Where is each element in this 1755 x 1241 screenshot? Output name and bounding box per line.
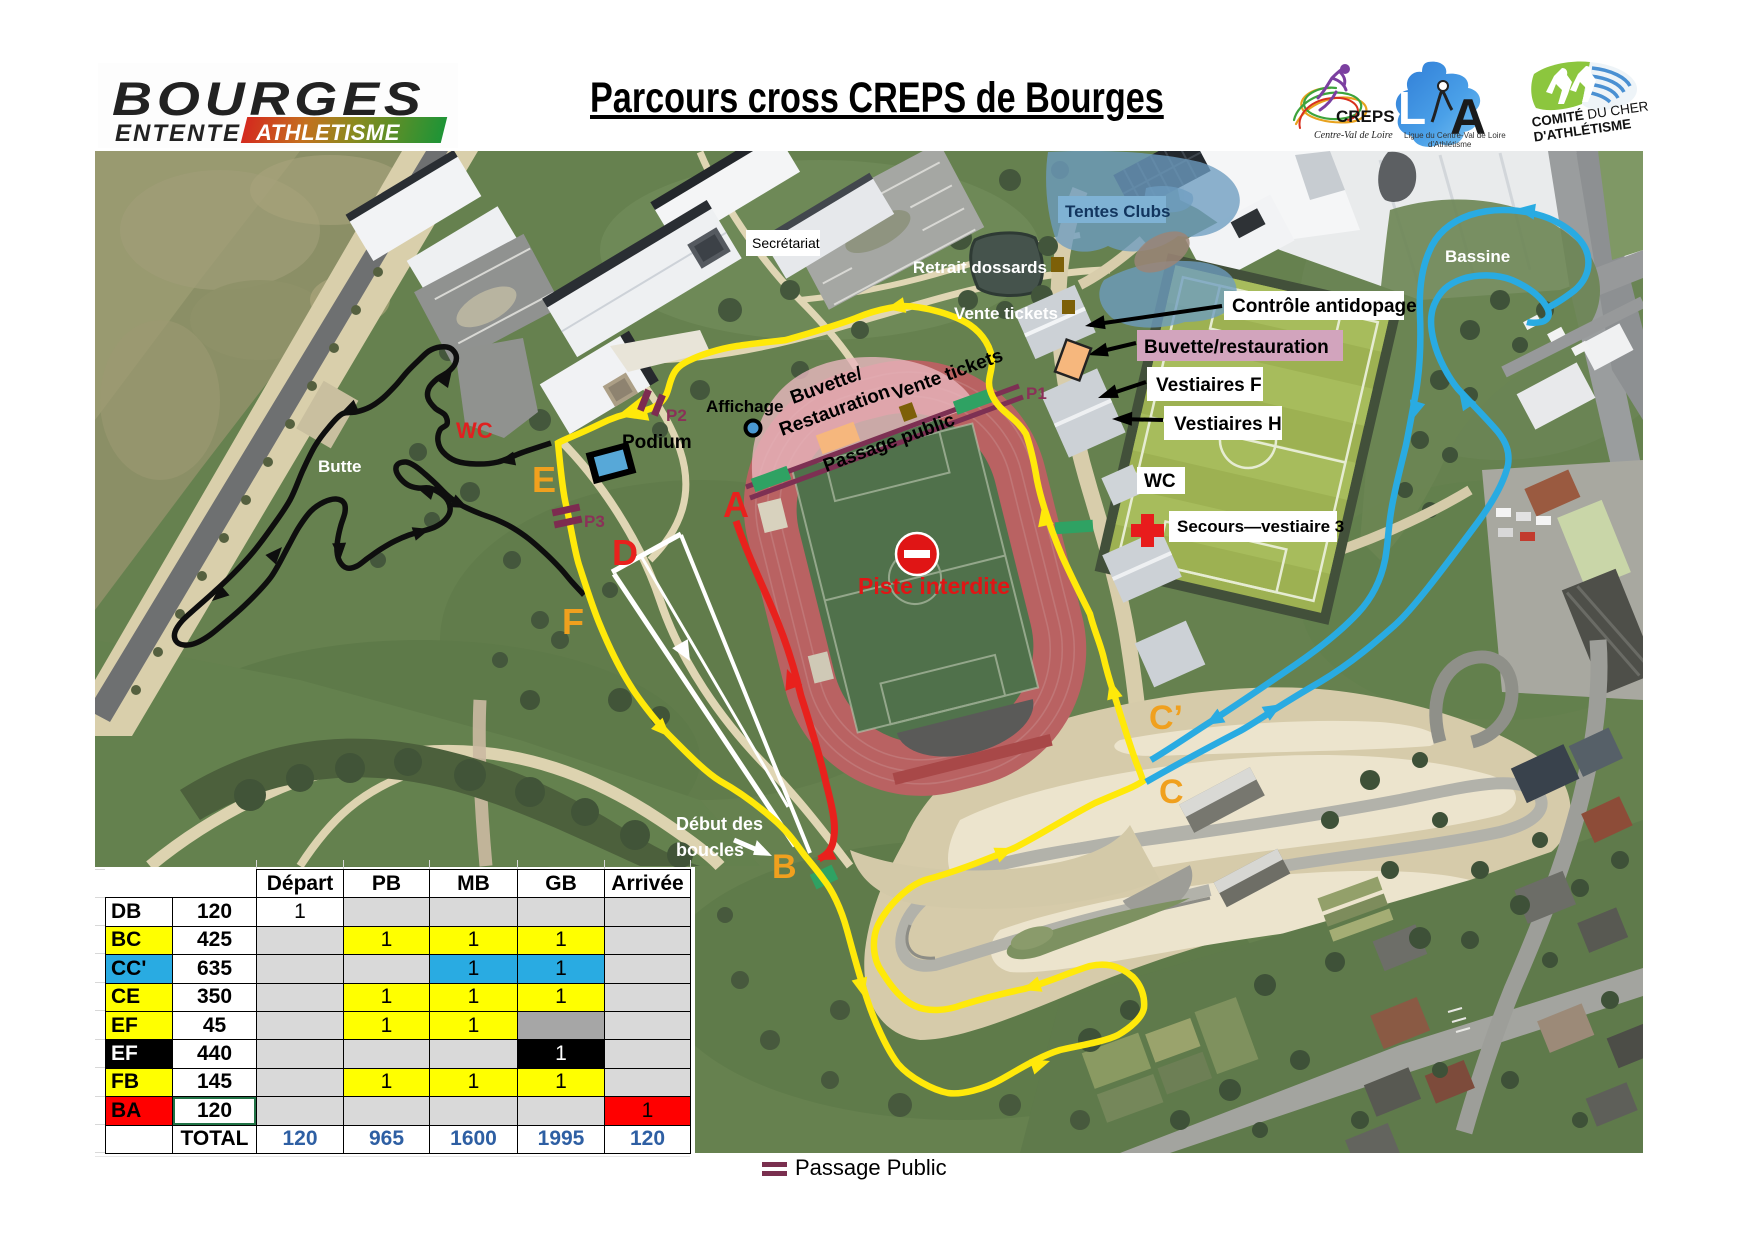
svg-text:P3: P3 xyxy=(584,512,605,531)
svg-text:Vente tickets: Vente tickets xyxy=(954,304,1058,323)
svg-text:L: L xyxy=(1398,82,1426,134)
svg-text:WC: WC xyxy=(456,418,493,443)
svg-text:Podium: Podium xyxy=(622,432,692,453)
svg-text:Affichage: Affichage xyxy=(706,397,783,416)
svg-text:C: C xyxy=(1159,773,1184,811)
svg-text:d'Athlétisme: d'Athlétisme xyxy=(1428,140,1472,149)
svg-text:Secrétariat: Secrétariat xyxy=(752,235,820,251)
svg-text:Contrôle antidopage: Contrôle antidopage xyxy=(1232,296,1417,317)
svg-text:Bassine: Bassine xyxy=(1445,247,1510,266)
svg-text:Vestiaires H: Vestiaires H xyxy=(1174,414,1282,435)
svg-text:WC: WC xyxy=(1144,471,1176,492)
svg-text:E: E xyxy=(532,459,556,500)
svg-text:F: F xyxy=(562,601,584,642)
svg-text:Buvette/restauration: Buvette/restauration xyxy=(1144,337,1329,358)
svg-text:boucles: boucles xyxy=(676,840,744,860)
svg-text:Tentes Clubs: Tentes Clubs xyxy=(1065,202,1170,221)
svg-text:Secours—vestiaire 3: Secours—vestiaire 3 xyxy=(1177,517,1344,536)
svg-text:B: B xyxy=(772,848,797,886)
svg-text:C’: C’ xyxy=(1149,699,1183,737)
svg-text:D: D xyxy=(612,532,638,573)
svg-text:Vestiaires F: Vestiaires F xyxy=(1156,375,1262,396)
svg-text:Butte: Butte xyxy=(318,457,361,476)
svg-text:Ligue du Centre-Val de Loire: Ligue du Centre-Val de Loire xyxy=(1404,131,1506,140)
svg-text:Piste interdite: Piste interdite xyxy=(858,573,1010,599)
svg-text:CREPS: CREPS xyxy=(1336,107,1395,126)
svg-text:P2: P2 xyxy=(666,406,687,425)
svg-text:A: A xyxy=(723,484,749,525)
svg-text:Centre-Val de Loire: Centre-Val de Loire xyxy=(1314,130,1393,141)
svg-text:Début des: Début des xyxy=(676,814,763,834)
svg-text:Retrait dossards: Retrait dossards xyxy=(913,258,1047,277)
svg-text:P1: P1 xyxy=(1026,384,1047,403)
